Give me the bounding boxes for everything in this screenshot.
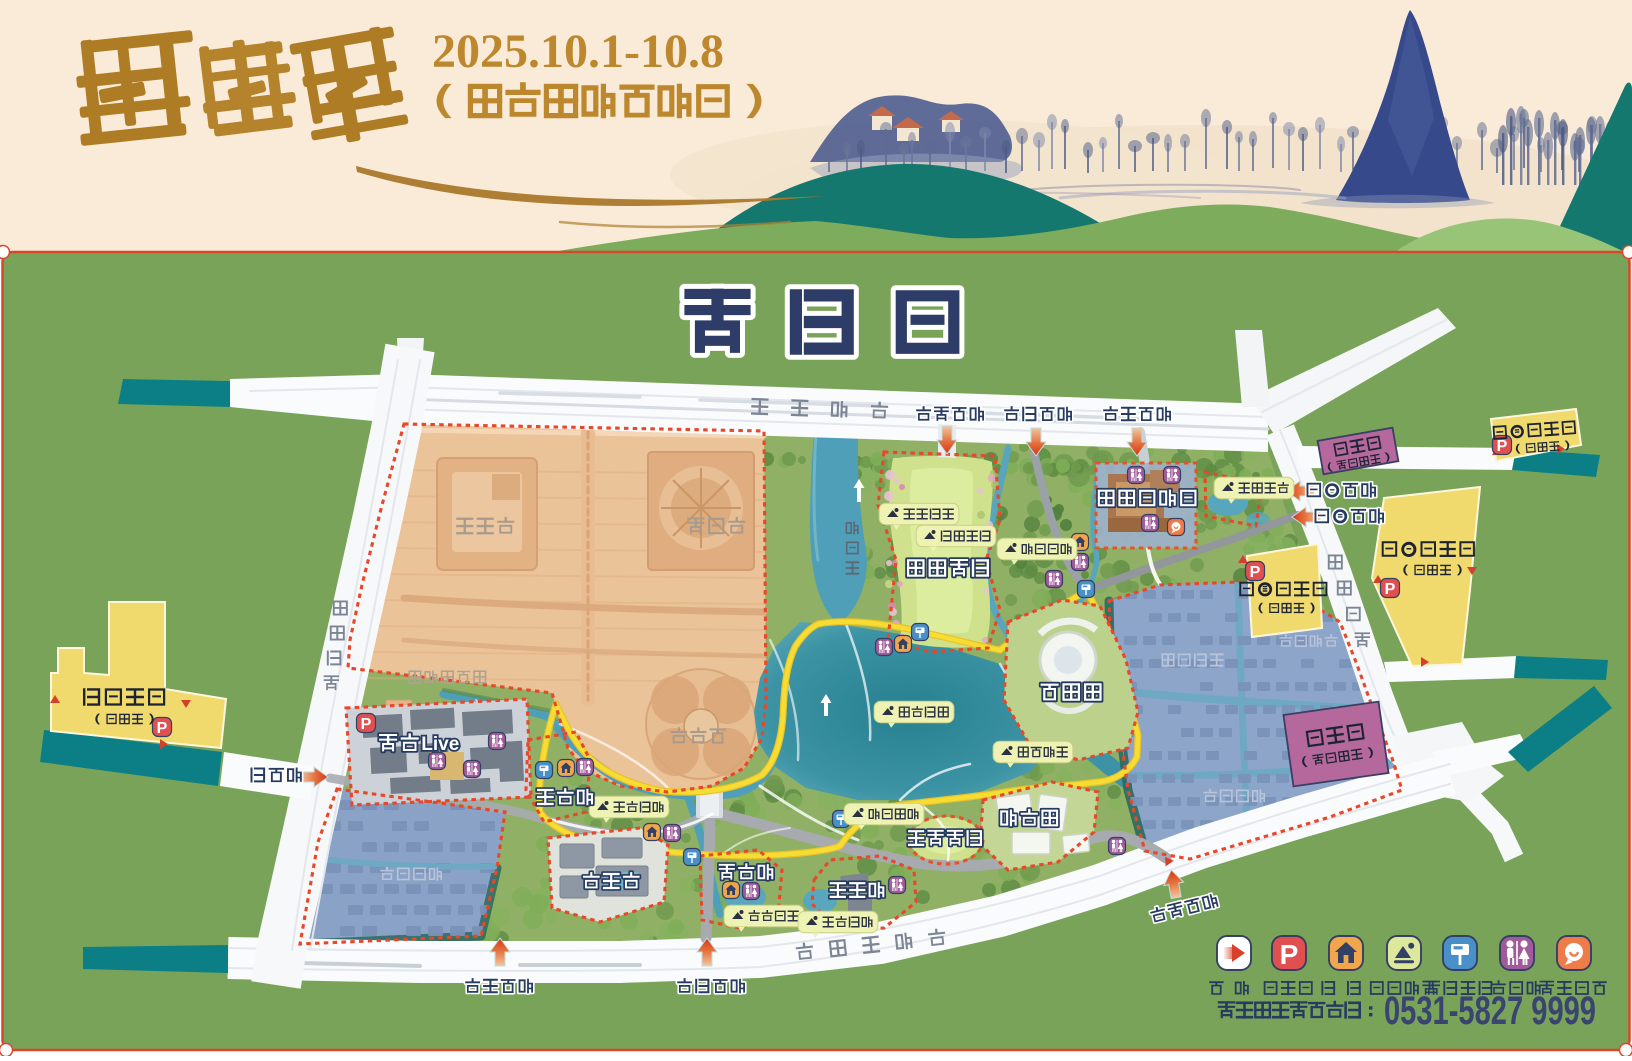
svg-text:P: P [1280, 939, 1299, 970]
svg-text:P: P [1250, 564, 1261, 581]
svg-text:0531-5827 9999: 0531-5827 9999 [1384, 989, 1596, 1033]
svg-text:P: P [1497, 438, 1508, 455]
svg-text:2025.10.1-10.8: 2025.10.1-10.8 [432, 25, 724, 78]
svg-text:P: P [157, 720, 168, 737]
svg-text:Live: Live [421, 734, 459, 755]
svg-text:P: P [361, 716, 372, 733]
svg-text:P: P [1385, 581, 1396, 598]
